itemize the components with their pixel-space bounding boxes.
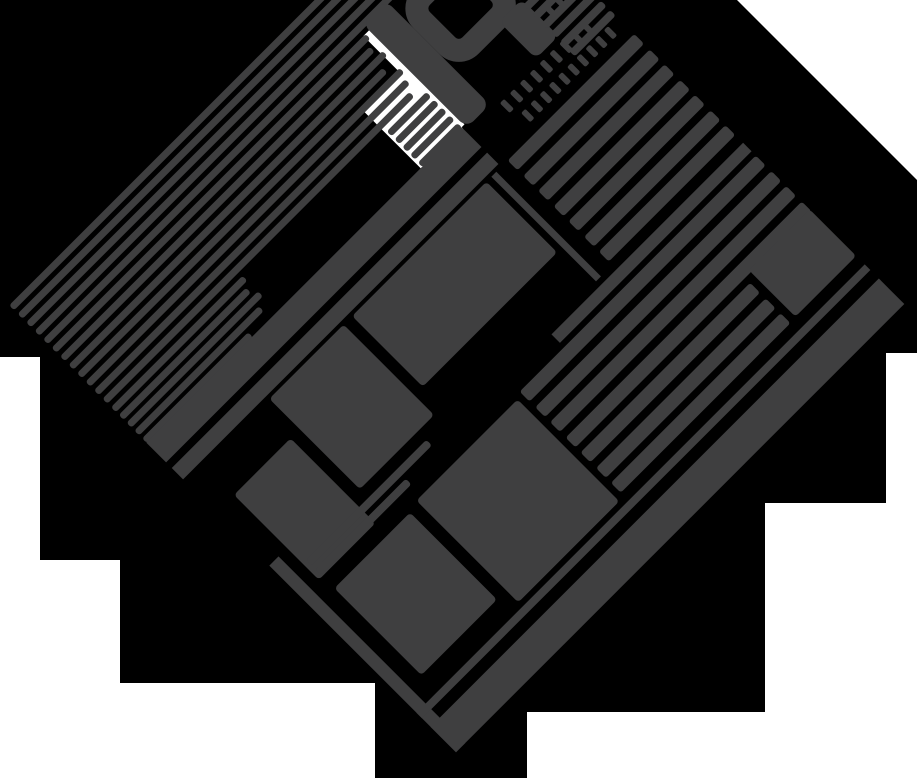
artwork-canvas — [0, 0, 917, 778]
